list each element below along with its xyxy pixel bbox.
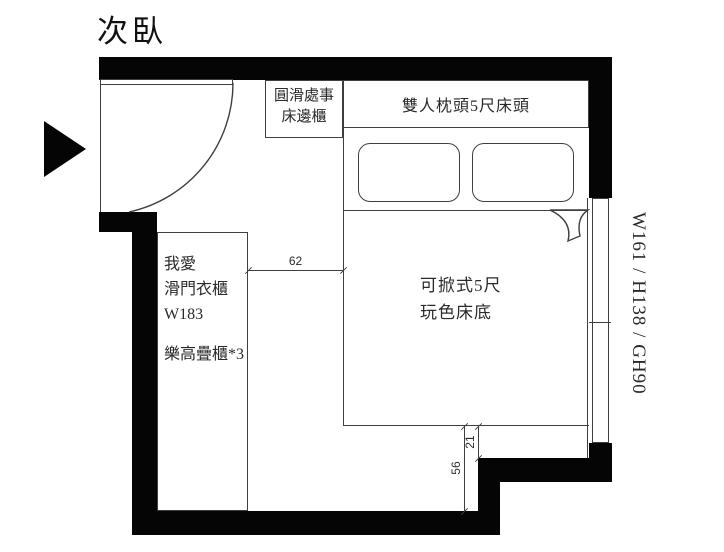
wall-left-step xyxy=(99,212,157,232)
bedside-cabinet-label-line1: 圓滑處事 xyxy=(265,86,343,107)
door-threshold-line xyxy=(100,80,101,212)
wall-left xyxy=(132,230,157,535)
wall-bottom xyxy=(133,511,500,535)
entrance-arrow-icon xyxy=(44,121,86,177)
bed-label-line1: 可掀式5尺 xyxy=(420,272,502,299)
bed-left-line xyxy=(343,80,344,426)
mattress-top-line xyxy=(343,210,588,211)
window-divider xyxy=(589,322,611,323)
door-leaf xyxy=(100,79,233,85)
bedside-cabinet-label-line2: 床邊櫃 xyxy=(265,107,343,128)
floor-plan: 次臥 圓滑處事 床邊櫃 雙人枕頭5尺床頭 可掀式5尺 玩色床底 我愛 滑門衣櫃 xyxy=(0,0,724,552)
wall-right-upper xyxy=(589,57,612,198)
pillow-right xyxy=(472,143,574,202)
blanket-fold xyxy=(550,210,588,241)
bed-right-line xyxy=(587,198,588,458)
dim-21-label: 21 xyxy=(463,432,477,452)
dim-21-line xyxy=(478,426,479,458)
dim-62-line xyxy=(248,270,343,271)
dim-56-label: 56 xyxy=(449,458,463,478)
dim-62-label: 62 xyxy=(248,254,343,268)
window xyxy=(592,198,609,443)
wardrobe-label-line2: 滑門衣櫃 xyxy=(164,277,228,302)
bed-label: 可掀式5尺 玩色床底 xyxy=(420,272,502,326)
headboard-label: 雙人枕頭5尺床頭 xyxy=(343,80,589,128)
bedside-cabinet-label: 圓滑處事 床邊櫃 xyxy=(265,86,343,128)
pillow-left xyxy=(358,143,460,202)
wardrobe-extra-label: 樂高疊櫃*3 xyxy=(164,340,244,364)
wardrobe-label: 我愛 滑門衣櫃 W183 xyxy=(164,252,228,327)
plan-title: 次臥 xyxy=(97,6,167,51)
wardrobe-label-line1: 我愛 xyxy=(164,252,228,277)
window-label: W161 / H138 / GH90 xyxy=(627,212,649,434)
dim-56-line xyxy=(464,426,465,511)
bed-label-line2: 玩色床底 xyxy=(420,299,502,326)
wall-top xyxy=(99,57,612,80)
wardrobe-label-line3: W183 xyxy=(164,302,228,327)
